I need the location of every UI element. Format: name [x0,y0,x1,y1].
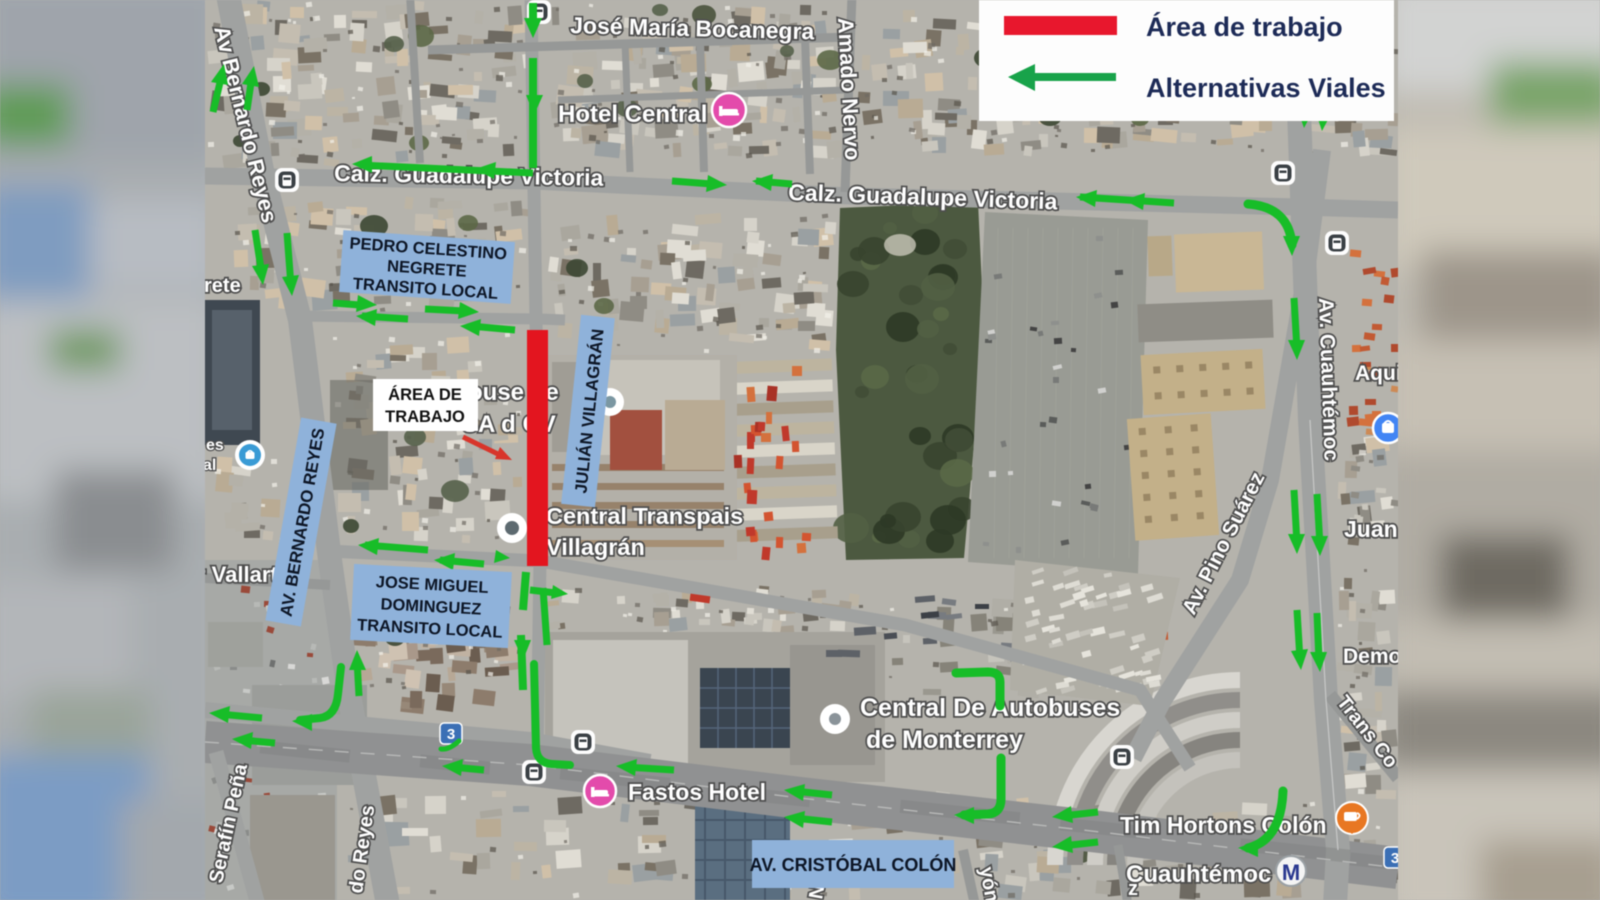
svg-text:es: es [206,437,224,454]
svg-text:de Monterrey: de Monterrey [866,726,1023,754]
svg-text:Fastos Hotel: Fastos Hotel [628,779,766,805]
svg-text:Hotel Central: Hotel Central [558,101,707,128]
svg-text:Central Transpais: Central Transpais [546,503,743,529]
svg-text:Juan: Juan [1344,516,1398,542]
svg-text:AV. CRISTÓBAL COLÓN: AV. CRISTÓBAL COLÓN [750,854,957,875]
svg-text:Alternativas Viales: Alternativas Viales [1146,73,1386,103]
svg-text:M: M [1282,860,1300,885]
svg-text:al: al [203,457,216,474]
svg-text:Central De Autobuses: Central De Autobuses [860,694,1120,722]
svg-text:z: z [1128,878,1138,900]
svg-text:Área de trabajo: Área de trabajo [1146,11,1343,42]
svg-text:rete: rete [204,275,241,297]
svg-text:Villagrán: Villagrán [546,534,645,560]
svg-text:Cuauhtémoc: Cuauhtémoc [1126,861,1271,888]
svg-text:Tim Hortons Colón: Tim Hortons Colón [1120,812,1327,838]
svg-text:Demo: Demo [1343,645,1401,668]
svg-text:TRABAJO: TRABAJO [385,408,465,426]
svg-text:3: 3 [447,726,455,743]
svg-text:3: 3 [1391,850,1399,867]
svg-text:Aqui: Aqui [1355,362,1402,385]
svg-text:ÁREA DE: ÁREA DE [388,385,462,404]
